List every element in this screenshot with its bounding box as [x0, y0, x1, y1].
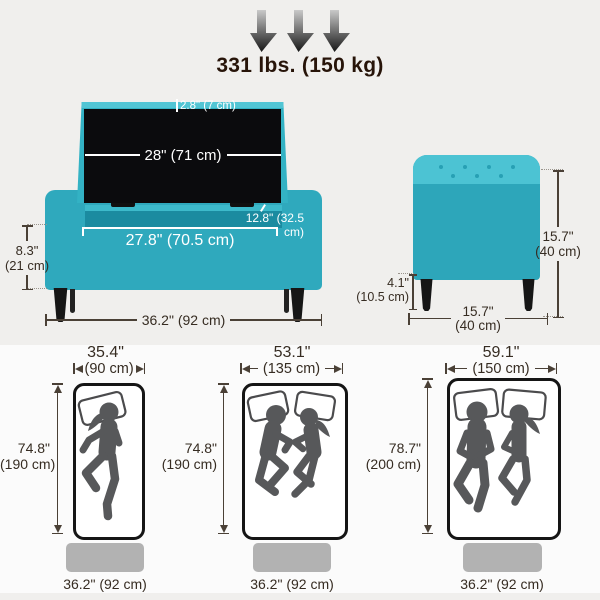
- mattress3-length-dimension: [421, 378, 434, 534]
- lid-thickness-tick: [176, 99, 178, 112]
- overall-height-dimension: 15.7" (40 cm): [534, 170, 582, 318]
- ottoman-footprint: [66, 543, 144, 572]
- mattress3-length-in: 78.7": [351, 440, 421, 456]
- depth-in: 15.7": [455, 305, 501, 319]
- opening-width-label: 27.8" (70.5 cm): [82, 232, 278, 250]
- mattress2-width-dimension: (135 cm): [240, 362, 343, 375]
- footprint-label: 36.2" (92 cm): [242, 576, 342, 592]
- tuft-button: [499, 174, 503, 178]
- mattress1-length-cm: (190 cm): [0, 456, 50, 472]
- bottom-border: [0, 593, 600, 600]
- mattress2-length-label: 74.8" (190 cm): [147, 440, 217, 472]
- leg-height-in: 4.1": [352, 276, 409, 290]
- mattress1-length-label: 74.8" (190 cm): [0, 440, 50, 472]
- mattress3-width-dimension: (150 cm): [445, 362, 557, 375]
- depth-cm: (40 cm): [455, 319, 501, 333]
- ottoman-footprint: [253, 543, 331, 572]
- tuft-button: [439, 165, 443, 169]
- base-height-cm: (21 cm): [5, 258, 49, 273]
- mattress2-length-cm: (190 cm): [147, 456, 217, 472]
- mattress1-outline: [73, 383, 145, 540]
- footprint-label: 36.2" (92 cm): [452, 576, 552, 592]
- mattress1-width-cm: (90 cm): [83, 361, 136, 377]
- base-height-in: 8.3": [5, 243, 49, 258]
- leg-height-dimension: 4.1" (10.5 cm): [352, 276, 409, 304]
- mattress3-length-label: 78.7" (200 cm): [351, 440, 421, 472]
- single-person-figure: [76, 386, 135, 530]
- tuft-button: [475, 174, 479, 178]
- couple-figures: [450, 381, 551, 530]
- opening-width-line: [82, 227, 278, 229]
- lid-thickness-label: 2.8" (7 cm): [180, 100, 236, 112]
- mattress3-length-cm: (200 cm): [351, 456, 421, 472]
- mattress2-length-dimension: [217, 383, 230, 534]
- lid-width-dimension: 28" (71 cm): [85, 145, 281, 165]
- height-in: 15.7": [535, 229, 581, 244]
- couple-figures: [245, 386, 338, 530]
- mattress3-outline: [447, 378, 561, 540]
- mattress1-length-in: 74.8": [0, 440, 50, 456]
- mattress3-width-in: 59.1": [447, 344, 555, 362]
- leg-height-cm: (10.5 cm): [352, 290, 409, 304]
- tuft-button: [463, 165, 467, 169]
- mattress2-length-in: 74.8": [147, 440, 217, 456]
- tuft-button: [511, 165, 515, 169]
- mattress2-outline: [242, 383, 348, 540]
- ottoman-footprint: [463, 543, 542, 572]
- overall-width-dimension: 36.2" (92 cm): [45, 308, 322, 332]
- weight-capacity-label: 331 lbs. (150 kg): [150, 54, 450, 78]
- mattress2-width-cm: (135 cm): [258, 361, 325, 377]
- depth-dimension: 15.7" (40 cm): [408, 305, 548, 332]
- tuft-button: [451, 174, 455, 178]
- tuft-button: [487, 165, 491, 169]
- leg-height-line: [407, 274, 419, 310]
- mattress1-width-dimension: (90 cm): [73, 362, 138, 375]
- side-ottoman-tufted-top: [413, 155, 540, 184]
- overall-width-label: 36.2" (92 cm): [137, 312, 231, 328]
- down-arrows-icon: [244, 10, 356, 55]
- product-dimension-diagram: 331 lbs. (150 kg) 2.8" (7 cm) 28" (71 cm…: [0, 0, 600, 600]
- height-cm: (40 cm): [535, 244, 581, 259]
- mattress2-width-in: 53.1": [242, 344, 342, 362]
- mattress1-width-in: 35.4": [73, 344, 138, 362]
- mattress3-width-cm: (150 cm): [467, 361, 534, 377]
- base-height-dimension: 8.3" (21 cm): [4, 225, 50, 290]
- footprint-label: 36.2" (92 cm): [55, 576, 155, 592]
- lid-width-label: 28" (71 cm): [140, 147, 227, 164]
